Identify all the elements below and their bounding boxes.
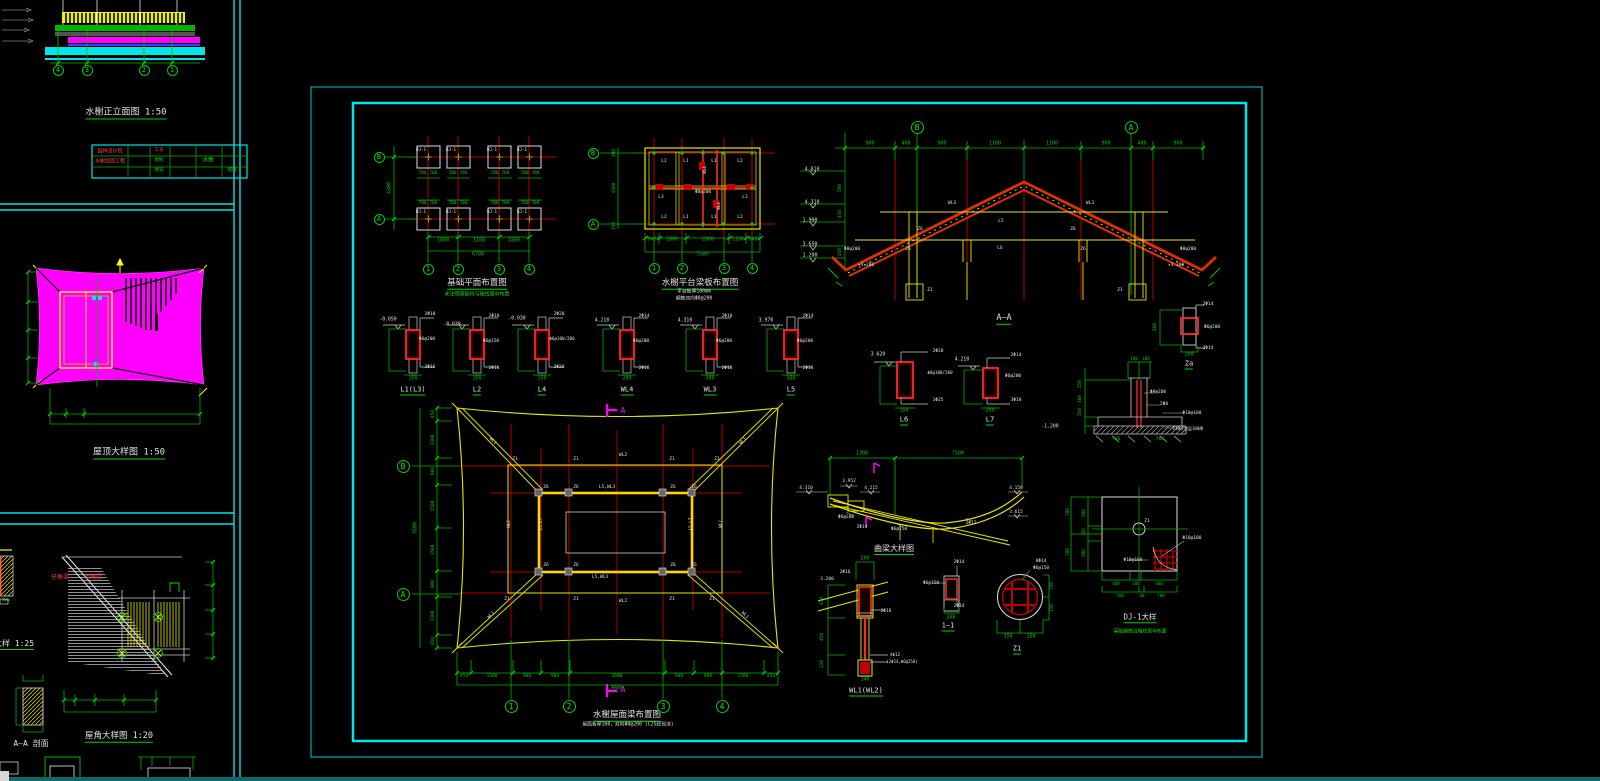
grid-bubble-2: 2 xyxy=(453,264,464,275)
grid-bubble-2: 2 xyxy=(677,263,688,274)
grid-bubble-1: 1 xyxy=(505,700,518,713)
grid-bubble-A: A xyxy=(374,214,385,225)
grid-bubble-B: B xyxy=(588,148,599,159)
grid-bubble-A: A xyxy=(588,219,599,230)
grid-bubble-4: 4 xyxy=(716,700,729,713)
grid-bubble-A: A xyxy=(397,588,410,601)
grid-bubble-2: 2 xyxy=(563,700,576,713)
grid-bubble-2: 2 xyxy=(139,65,150,76)
grid-bubble-3: 3 xyxy=(657,700,670,713)
grid-bubble-3: 3 xyxy=(494,264,505,275)
grid-bubble-A: A xyxy=(1125,121,1138,134)
grid-bubble-4: 4 xyxy=(53,65,64,76)
grid-bubble-B: B xyxy=(374,152,385,163)
grid-bubble-1: 1 xyxy=(167,65,178,76)
grid-bubble-4: 4 xyxy=(747,263,758,274)
grid-bubble-B: B xyxy=(397,460,410,473)
grid-bubble-1: 1 xyxy=(423,264,434,275)
grid-bubble-1: 1 xyxy=(649,263,660,274)
grid-bubble-3: 3 xyxy=(719,263,730,274)
cad-canvas: 水榭正立面图 1:50屋顶大样图 1:50屋角大样图 1:20A—A 剖面大样 … xyxy=(0,0,1600,781)
bubble-layer: 4321BA1234BA1234BABA1234 xyxy=(0,0,1600,781)
grid-bubble-B: B xyxy=(911,121,924,134)
grid-bubble-3: 3 xyxy=(82,65,93,76)
grid-bubble-4: 4 xyxy=(524,264,535,275)
